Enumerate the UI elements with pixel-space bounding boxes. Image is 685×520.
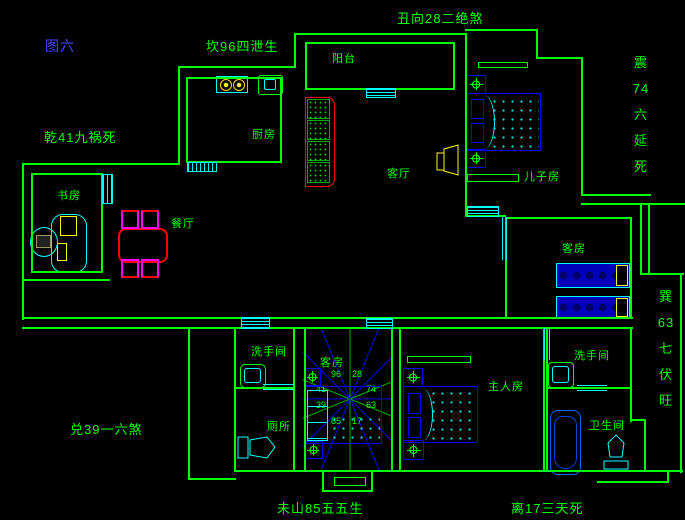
bed-mattress <box>429 389 477 441</box>
nightstand <box>403 368 423 387</box>
figure-title: 图六 <box>45 36 75 56</box>
room-label-master: 主人房 <box>488 378 524 394</box>
wall <box>581 194 651 196</box>
door <box>577 385 607 391</box>
wall <box>22 279 110 281</box>
dining-table <box>118 228 168 263</box>
wall <box>188 478 236 480</box>
wall <box>234 328 236 472</box>
dining-chair <box>121 210 139 229</box>
shelf <box>478 62 528 68</box>
dining-chair <box>141 259 159 278</box>
shelf <box>407 356 471 363</box>
nightstand <box>304 368 321 386</box>
door <box>544 328 550 360</box>
wall <box>188 328 190 480</box>
wall <box>391 328 393 472</box>
wall <box>630 328 632 422</box>
room-outline <box>186 77 282 163</box>
room-label-sons-room: 儿子房 <box>524 168 560 184</box>
wall <box>640 273 684 275</box>
bed-pillow <box>471 99 484 119</box>
wall <box>178 66 180 165</box>
wall <box>22 327 633 329</box>
wall <box>644 419 646 472</box>
wall <box>322 490 373 492</box>
room-outline <box>305 42 455 90</box>
floor-plan: 图六 丑向28二绝煞 坎96四泄生 乾41九祸死 震 74 六 延 死 巽 63… <box>0 0 685 520</box>
tv-icon <box>436 144 460 176</box>
label-li-17: 离17三天死 <box>511 498 583 517</box>
nightstand <box>466 75 486 94</box>
sink-bowl-icon <box>244 368 261 383</box>
wall <box>322 470 324 492</box>
label-kan-96: 坎96四泄生 <box>206 36 278 55</box>
wall <box>680 275 682 473</box>
bed-mattress <box>330 415 380 443</box>
room-label-washroom-left: 洗手间 <box>251 343 287 359</box>
label-xun-63: 巽 63 七 伏 旺 <box>654 284 678 414</box>
wall <box>371 470 373 492</box>
room-outline <box>334 477 366 486</box>
bed-pillow <box>408 393 421 414</box>
sink-bowl-icon <box>552 366 569 383</box>
door <box>263 384 294 390</box>
window <box>102 174 113 204</box>
wall <box>597 481 669 483</box>
nightstand <box>403 440 424 460</box>
room-label-washroom-right: 洗手间 <box>574 347 610 363</box>
window <box>241 317 270 329</box>
wall <box>648 203 650 275</box>
wardrobe <box>307 390 328 441</box>
window <box>467 206 499 217</box>
bed-pillow <box>408 417 421 438</box>
dining-chair <box>121 259 139 278</box>
room-outline <box>505 217 632 319</box>
dining-chair <box>141 210 159 229</box>
bathtub-inner <box>554 416 577 469</box>
door <box>502 217 507 260</box>
sofa-cushion <box>307 162 330 183</box>
wall <box>304 328 306 472</box>
compass-number: 96 <box>331 369 341 379</box>
label-chou-28: 丑向28二绝煞 <box>397 8 483 27</box>
wall <box>294 33 296 68</box>
wall <box>667 470 669 483</box>
sofa-cushion <box>307 141 330 161</box>
label-zhen-74: 震 74 六 延 死 <box>629 50 653 180</box>
wall <box>465 29 538 31</box>
toilet-icon <box>237 434 277 461</box>
shelf <box>467 174 519 182</box>
wall <box>234 470 683 472</box>
window <box>366 318 393 329</box>
wall <box>581 203 685 205</box>
label-qian-41: 乾41九祸死 <box>44 127 116 146</box>
toilet-icon <box>600 433 632 473</box>
label-wei-85: 未山85五五生 <box>277 498 363 517</box>
room-label-toilet: 厕所 <box>267 418 291 434</box>
window <box>366 88 396 98</box>
wall <box>294 33 467 35</box>
sofa-cushion <box>307 99 330 119</box>
nightstand <box>466 149 486 168</box>
wall <box>640 203 642 275</box>
label-dui-39: 兑39一六煞 <box>70 419 142 438</box>
window <box>187 162 217 172</box>
wall <box>293 328 295 472</box>
wall <box>536 57 582 59</box>
wall <box>22 163 180 165</box>
wall <box>465 33 467 217</box>
room-label-living: 客厅 <box>387 165 411 181</box>
bed-pillow <box>471 123 484 143</box>
wall <box>399 328 401 472</box>
wall <box>178 66 296 68</box>
sofa-cushion <box>307 120 330 140</box>
room-outline <box>31 173 103 273</box>
wall <box>581 57 583 196</box>
compass-number: 28 <box>352 369 362 379</box>
bed-mattress <box>490 97 539 149</box>
room-label-bathroom: 卫生间 <box>589 417 625 433</box>
room-label-dining: 餐厅 <box>171 215 195 231</box>
wall <box>22 163 24 320</box>
nightstand <box>304 441 323 459</box>
wall <box>536 29 538 59</box>
